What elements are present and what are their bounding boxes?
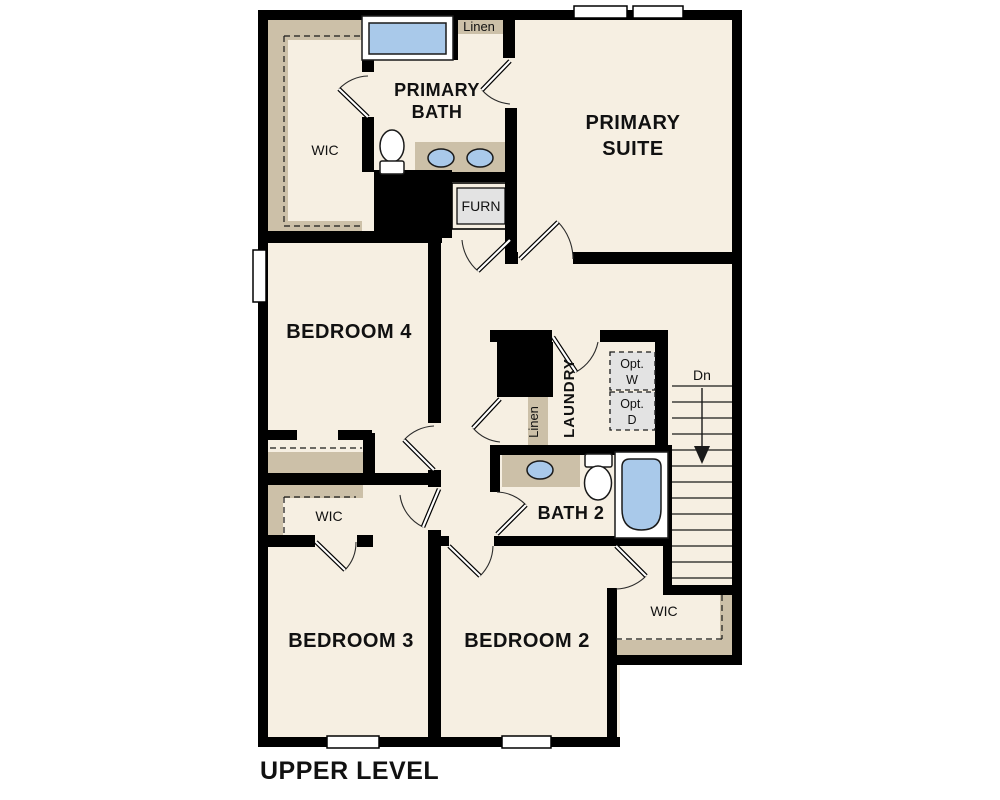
opt-washer-label-line1: Opt.	[620, 357, 644, 371]
bedroom2-wic-label: WIC	[650, 603, 677, 619]
window	[327, 736, 379, 748]
bath2-sink	[527, 461, 553, 479]
bedroom3-wic-shelf-left	[268, 485, 283, 535]
bathtub	[615, 452, 668, 538]
page-title: UPPER LEVEL	[260, 757, 439, 785]
bedroom3-label: BEDROOM 3	[288, 630, 414, 652]
bedroom2-wic-shelf-bottom	[616, 640, 736, 655]
sink	[467, 149, 493, 167]
window	[633, 6, 683, 18]
primary-wic-shelf-left	[268, 20, 288, 231]
primary-suite-label-line2: SUITE	[602, 138, 663, 160]
floor-plan-page: PRIMARY BATH PRIMARY SUITE WIC Linen FUR…	[0, 0, 1000, 800]
shower	[362, 16, 453, 60]
bedroom4-closet-shelf	[268, 452, 363, 473]
opt-dryer-label-line2: D	[627, 413, 636, 427]
sink	[428, 149, 454, 167]
primary-suite-label-line1: PRIMARY	[586, 112, 681, 134]
window	[502, 736, 551, 748]
hall-linen-label: Linen	[526, 406, 541, 438]
stairs-dn-label: Dn	[693, 367, 711, 383]
bath2-toilet	[585, 454, 613, 500]
primary-bath-label-line1: PRIMARY	[394, 80, 480, 100]
furnace-label: FURN	[462, 198, 501, 214]
opt-dryer-label-line1: Opt.	[620, 397, 644, 411]
bedroom2-label: BEDROOM 2	[464, 630, 590, 652]
primary-toilet	[380, 130, 404, 174]
primary-bath-label-line2: BATH	[412, 102, 463, 122]
window	[253, 250, 266, 302]
laundry-label: LAUNDRY	[561, 358, 578, 438]
upper-linen-label: Linen	[463, 19, 495, 34]
opt-washer-label-line2: W	[626, 373, 638, 387]
window	[574, 6, 627, 18]
primary-wic-label: WIC	[311, 142, 338, 158]
bedroom3-wic-label: WIC	[315, 508, 342, 524]
bath2-label: BATH 2	[538, 503, 605, 523]
bedroom4-label: BEDROOM 4	[286, 321, 412, 343]
floor-plan-svg: PRIMARY BATH PRIMARY SUITE WIC Linen FUR…	[0, 0, 1000, 800]
